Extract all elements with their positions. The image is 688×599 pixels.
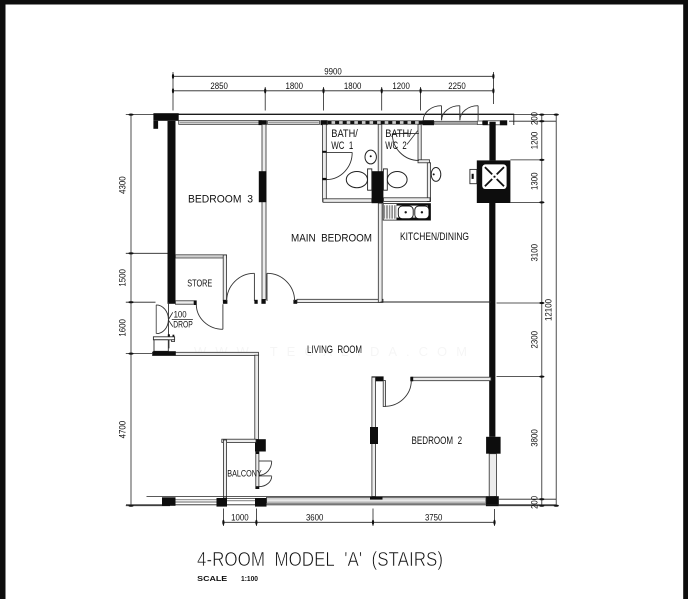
svg-text:12100: 12100 [544, 299, 554, 321]
svg-text:3100: 3100 [530, 244, 540, 262]
svg-text:KITCHEN/DINING: KITCHEN/DINING [400, 231, 469, 243]
svg-text:1300: 1300 [530, 172, 540, 190]
svg-text:MAIN BEDROOM: MAIN BEDROOM [291, 232, 372, 244]
svg-text:1800: 1800 [286, 81, 304, 91]
svg-text:100: 100 [174, 310, 187, 320]
svg-text:1800: 1800 [344, 81, 362, 91]
svg-text:BEDROOM 3: BEDROOM 3 [188, 193, 253, 205]
svg-text:1000: 1000 [231, 513, 249, 523]
svg-text:4700: 4700 [117, 421, 127, 439]
svg-text:200: 200 [530, 496, 540, 509]
svg-text:9900: 9900 [324, 66, 342, 76]
svg-text:1600: 1600 [117, 319, 127, 337]
svg-text:1500: 1500 [117, 269, 127, 287]
svg-text:3600: 3600 [306, 513, 324, 523]
svg-text:1200: 1200 [392, 81, 410, 91]
svg-text:4300: 4300 [117, 176, 127, 194]
svg-text:2300: 2300 [530, 331, 540, 349]
svg-text:BEDROOM 2: BEDROOM 2 [412, 435, 463, 447]
svg-text:200: 200 [530, 112, 540, 125]
svg-text:BALCONY: BALCONY [227, 469, 262, 480]
svg-text:2250: 2250 [448, 81, 466, 91]
svg-text:WC 1: WC 1 [331, 140, 353, 152]
svg-text:LIVING ROOM: LIVING ROOM [307, 344, 362, 356]
svg-text:1:100: 1:100 [241, 574, 258, 583]
svg-text:1200: 1200 [530, 132, 540, 150]
svg-text:WC 2: WC 2 [385, 140, 407, 152]
svg-text:2850: 2850 [210, 81, 228, 91]
svg-text:3800: 3800 [530, 429, 540, 447]
svg-text:3750: 3750 [425, 513, 443, 523]
svg-text:BATH/: BATH/ [385, 128, 412, 140]
svg-text:STORE: STORE [187, 278, 212, 290]
svg-text:4-ROOM MODEL 'A' (STAIRS): 4-ROOM MODEL 'A' (STAIRS) [197, 549, 443, 571]
svg-text:DROP: DROP [173, 319, 193, 329]
svg-text:BATH/: BATH/ [331, 128, 358, 140]
svg-text:SCALE: SCALE [197, 574, 227, 583]
